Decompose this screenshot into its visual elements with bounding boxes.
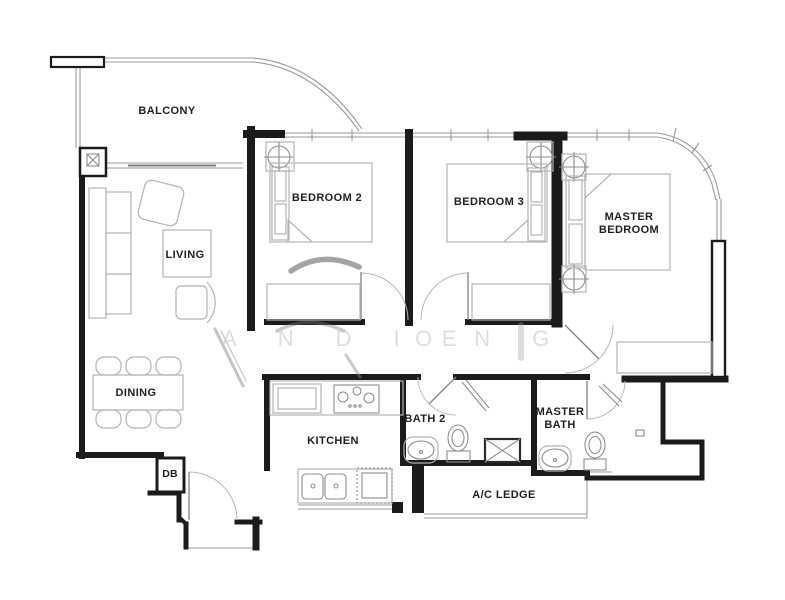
room-label-bedroom3: BEDROOM 3 <box>454 196 524 208</box>
floorplan-drawing <box>0 0 785 600</box>
room-label-bath2: BATH 2 <box>404 413 445 425</box>
watermark-text-right: O N G <box>415 326 567 352</box>
coffee-table <box>137 179 211 277</box>
room-label-dining: DINING <box>116 387 157 399</box>
room-label-kitchen: KITCHEN <box>307 435 359 447</box>
bed-bedroom3 <box>447 142 556 242</box>
floorplan: A N D I E O N G BALCONY LIVING DINING BE… <box>0 0 785 600</box>
wardrobe-master-bedroom <box>617 342 712 373</box>
room-label-master-bath: MASTER BATH <box>529 406 591 432</box>
room-label-bedroom2: BEDROOM 2 <box>292 192 362 204</box>
room-label-master-bedroom: MASTER BEDROOM <box>590 211 668 237</box>
armchair <box>176 282 215 323</box>
sofa <box>89 188 131 318</box>
room-label-living: LIVING <box>165 249 204 261</box>
wardrobe-bedroom2 <box>267 284 360 320</box>
room-label-balcony: BALCONY <box>138 105 195 117</box>
room-label-ac-ledge: A/C LEDGE <box>472 489 536 501</box>
wardrobe-bedroom3 <box>472 284 550 320</box>
walls <box>51 57 725 547</box>
room-label-db: DB <box>162 468 178 480</box>
